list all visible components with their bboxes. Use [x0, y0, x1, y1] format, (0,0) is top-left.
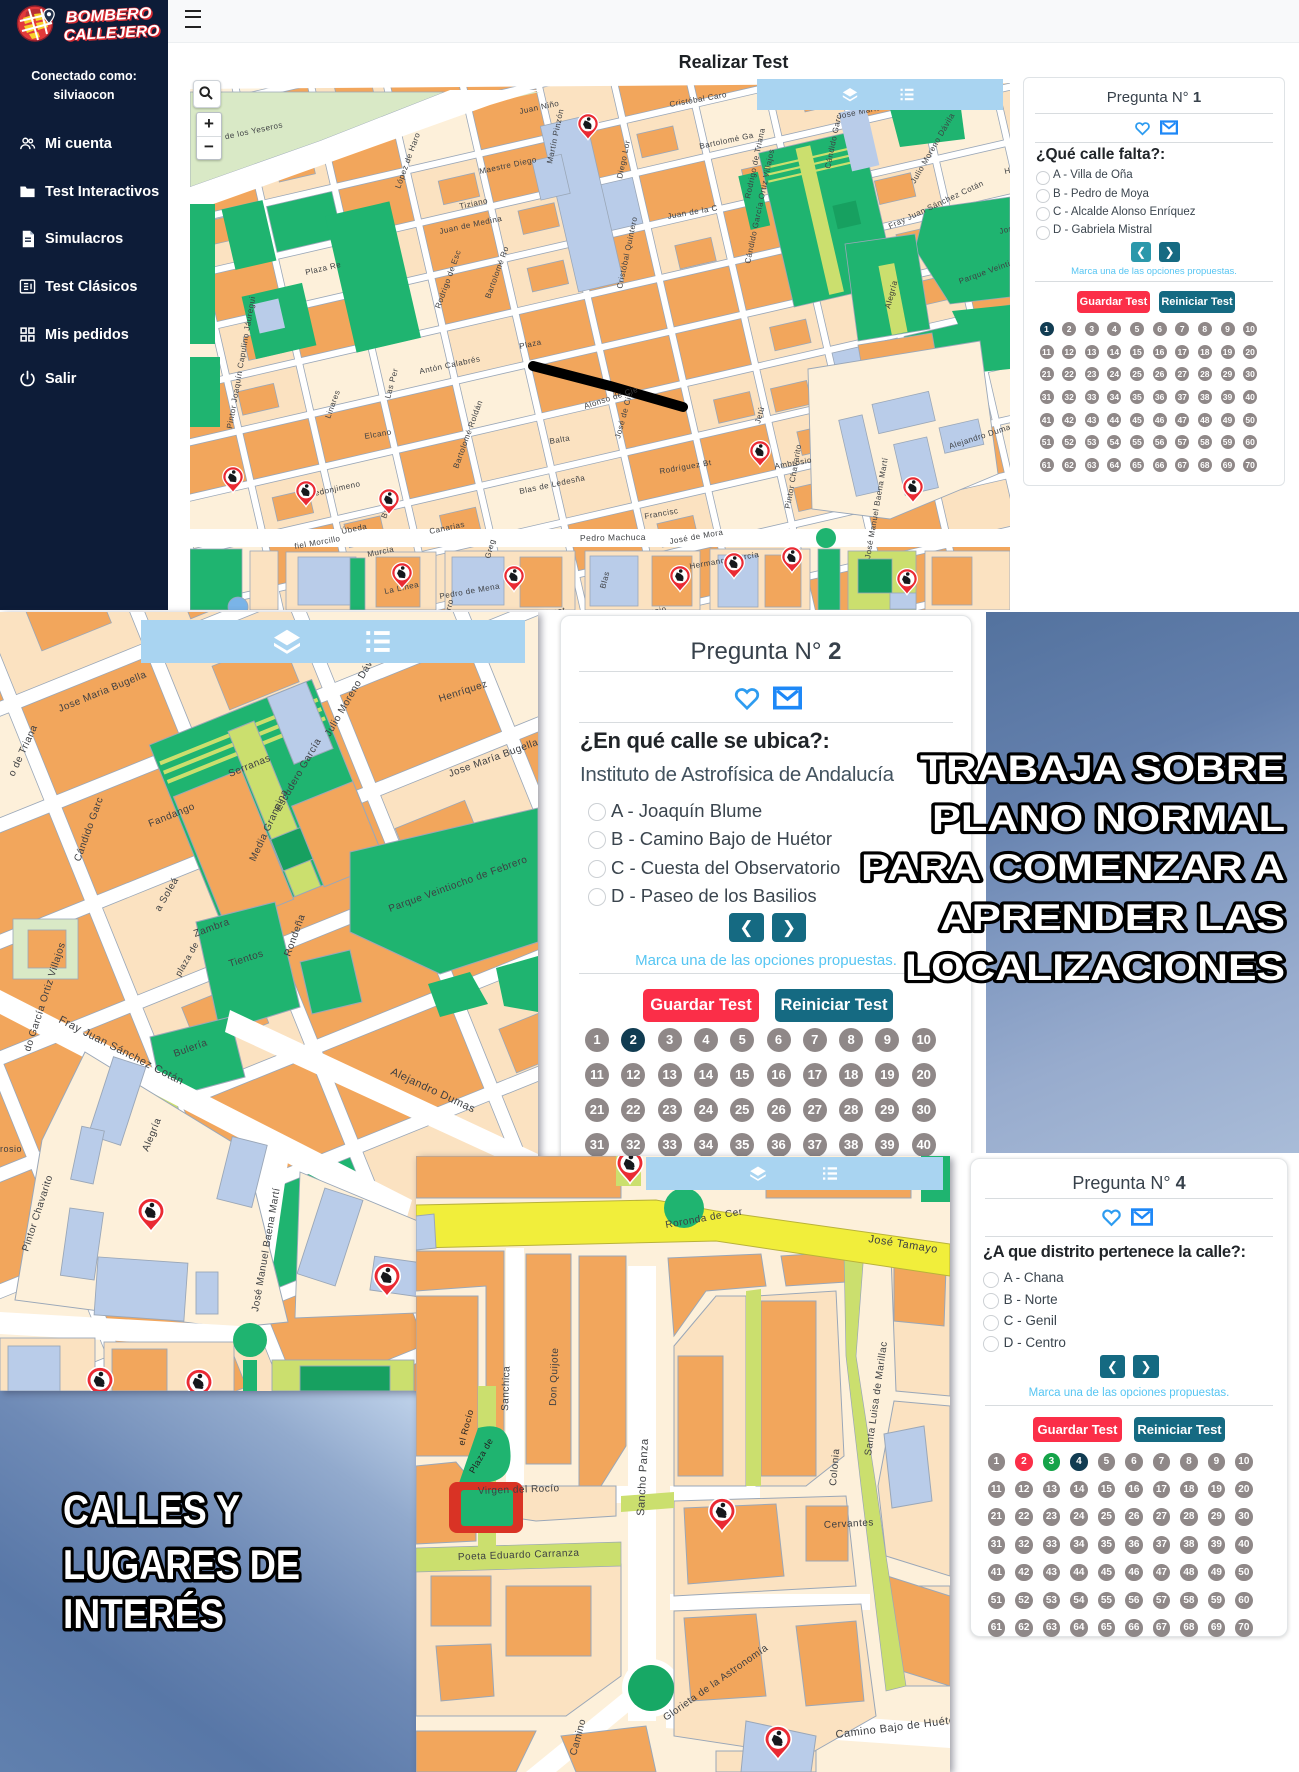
- svg-text:Don Quijote: Don Quijote: [548, 1347, 561, 1406]
- svg-text:CALLES Y: CALLES Y: [63, 1486, 240, 1533]
- svg-text:APRENDER LAS: APRENDER LAS: [940, 897, 1285, 938]
- svg-text:LOCALIZACIONES: LOCALIZACIONES: [905, 947, 1285, 988]
- svg-text:PLANO NORMAL: PLANO NORMAL: [932, 798, 1285, 839]
- svg-text:INTERÉS: INTERÉS: [63, 1590, 224, 1637]
- svg-text:rosio: rosio: [0, 1144, 22, 1154]
- svg-text:PARA COMENZAR A: PARA COMENZAR A: [861, 847, 1285, 888]
- svg-text:LUGARES DE: LUGARES DE: [63, 1541, 300, 1588]
- svg-text:Sanchica: Sanchica: [500, 1366, 513, 1411]
- svg-text:TRABAJA SOBRE: TRABAJA SOBRE: [920, 748, 1285, 789]
- svg-text:Pedro Machuca: Pedro Machuca: [580, 532, 646, 543]
